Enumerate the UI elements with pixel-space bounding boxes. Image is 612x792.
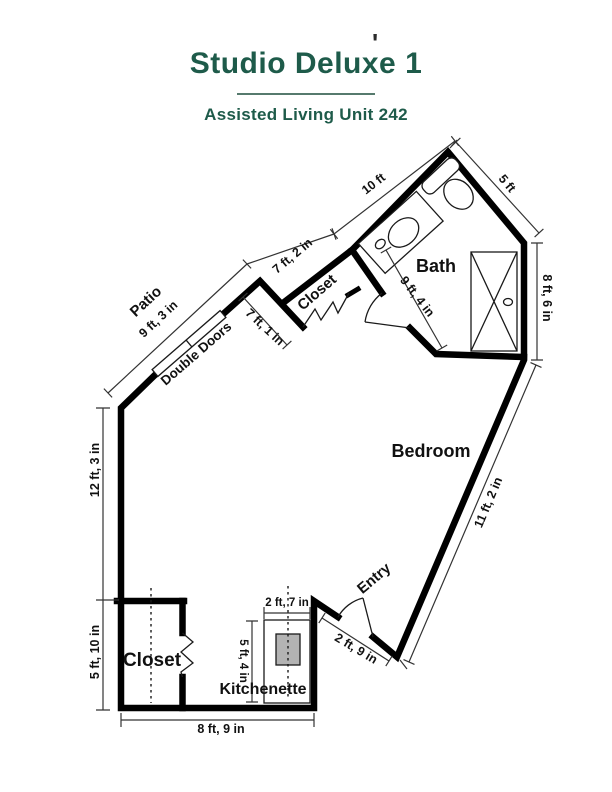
- closet-lower-bifold-zigzag: [181, 633, 193, 677]
- wall-bath-south: [410, 328, 524, 357]
- dim-label-left-wall-upper: 12 ft, 3 in: [88, 443, 102, 497]
- dim-label-left-wall-lower: 5 ft, 10 in: [88, 625, 102, 679]
- dimension-lines: [96, 136, 543, 727]
- entry-door-arc: [338, 598, 363, 617]
- dim-label-top-wall: 10 ft: [359, 170, 389, 197]
- dim-label-bath-width: 9 ft, 4 in: [397, 274, 437, 320]
- entry-door-leaf: [363, 598, 373, 637]
- dim-label-bottom-wall: 8 ft, 9 in: [197, 722, 244, 736]
- dim-label-right-wall: 8 ft, 6 in: [540, 274, 554, 321]
- dim-line-bedroom-wall: [400, 363, 542, 669]
- bath-door-arc: [365, 293, 382, 322]
- shower-drain: [504, 299, 513, 306]
- floor-plan: Patio 9 ft, 3 in Double Doors 7 ft, 2 in…: [0, 0, 612, 792]
- walls: [117, 152, 524, 708]
- dim-label-top-right-wall: 5 ft: [496, 172, 519, 196]
- fixtures: [151, 155, 517, 703]
- dim-label-bedroom-wall: 11 ft, 2 in: [471, 475, 505, 530]
- room-label-closet-lower: Closet: [123, 650, 182, 671]
- dim-label-top-left-wall: 7 ft, 2 in: [270, 235, 315, 276]
- room-label-kitchenette: Kitchenette: [219, 681, 306, 698]
- shower: [471, 252, 517, 351]
- room-label-bath: Bath: [416, 256, 456, 276]
- bath-door-leaf: [365, 322, 410, 328]
- wall-closet-upper-stub: [348, 289, 358, 295]
- dim-label-closet-depth: 7 ft, 1 in: [243, 306, 287, 348]
- dim-label-kitchenette-width: 2 ft, 7 in: [265, 597, 308, 609]
- room-label-bedroom: Bedroom: [391, 441, 470, 461]
- feature-label-double-doors: Double Doors: [158, 319, 235, 388]
- dim-label-kitchenette-depth: 5 ft, 4 in: [237, 639, 249, 682]
- room-label-entry: Entry: [354, 559, 395, 597]
